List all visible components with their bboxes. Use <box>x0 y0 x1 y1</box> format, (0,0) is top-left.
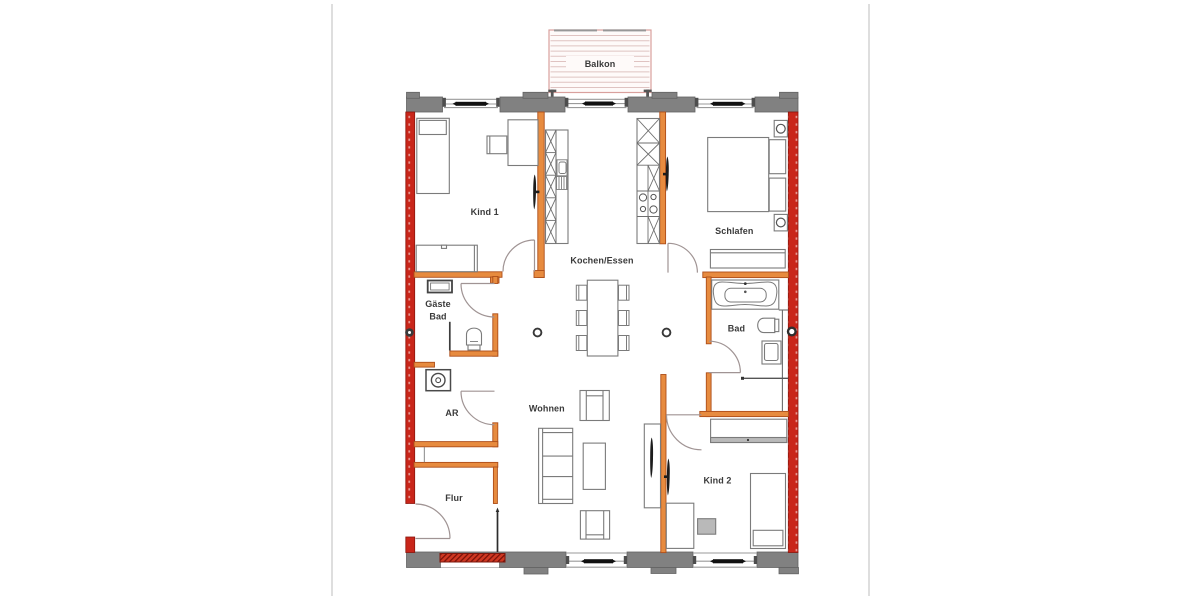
svg-text:Kind 1: Kind 1 <box>471 207 499 217</box>
svg-text:Kochen/Essen: Kochen/Essen <box>570 256 633 266</box>
svg-text:Balkon: Balkon <box>585 59 616 69</box>
svg-text:Flur: Flur <box>445 493 463 503</box>
svg-text:Bad: Bad <box>728 324 745 334</box>
svg-text:Kind 2: Kind 2 <box>703 476 731 486</box>
svg-text:Gäste: Gäste <box>425 299 451 309</box>
svg-text:AR: AR <box>445 408 459 418</box>
svg-text:Schlafen: Schlafen <box>715 226 753 236</box>
svg-text:Bad: Bad <box>429 312 446 322</box>
svg-text:Wohnen: Wohnen <box>529 404 565 414</box>
